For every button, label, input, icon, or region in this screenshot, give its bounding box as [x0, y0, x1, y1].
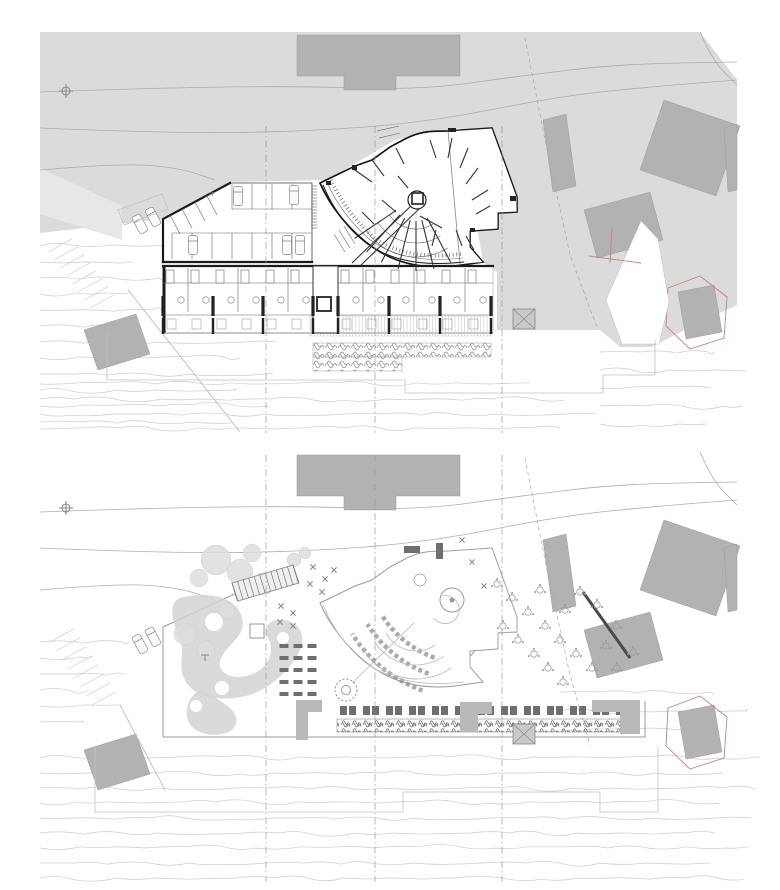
picnic-table [280, 692, 289, 696]
contour-line [40, 861, 711, 866]
bed [241, 270, 249, 283]
picnic-table [294, 644, 303, 648]
bed [442, 270, 450, 283]
plant-mark-icon [331, 567, 336, 572]
picnic-table [308, 668, 317, 672]
sun-lounger-deck [296, 700, 640, 740]
bed [417, 270, 425, 283]
picnic-table [308, 656, 317, 660]
terrace-step-line [80, 674, 104, 687]
contour-line [600, 351, 714, 354]
round-table [577, 589, 583, 595]
room-divider-wall [161, 296, 164, 316]
sun-lounger [524, 706, 531, 715]
contour-line [40, 403, 269, 408]
architectural-site-plan-sheet [0, 0, 780, 890]
round-table [515, 637, 521, 643]
sun-lounger [363, 706, 370, 715]
bed [468, 270, 476, 283]
sun-lounger [547, 706, 554, 715]
tree-canopy [174, 623, 196, 645]
sun-lounger [441, 706, 448, 715]
round-table [545, 665, 551, 671]
sun-lounger [432, 706, 439, 715]
picnic-table [294, 680, 303, 684]
contour-line [560, 691, 714, 694]
contour-line [560, 709, 747, 714]
terrace-step-line [48, 239, 72, 252]
contour-line [40, 243, 170, 246]
car-icon [296, 236, 305, 255]
contour-line [40, 845, 748, 850]
picnic-table [280, 644, 289, 648]
contour-line [40, 800, 719, 805]
terrace-step-line [66, 263, 90, 276]
sun-lounger [386, 706, 393, 715]
car-icon [234, 187, 243, 206]
sun-lounger [418, 706, 425, 715]
room-divider-wall [261, 296, 264, 316]
tree-canopy [287, 553, 301, 567]
terrace-step-line [60, 255, 84, 268]
plant-mark-icon [459, 537, 464, 542]
road-line [700, 452, 737, 505]
tree-canopy [299, 547, 311, 559]
picnic-table [308, 644, 317, 648]
context-building [297, 455, 460, 510]
round-table [573, 651, 579, 657]
sun-lounger [510, 706, 517, 715]
contour-line [600, 404, 743, 409]
sun-lounger [340, 706, 347, 715]
contour-line [40, 705, 121, 707]
tree-canopy [201, 545, 231, 575]
contour-line [40, 277, 166, 280]
contour-line [40, 426, 560, 431]
picnic-table [280, 656, 289, 660]
site-roof-plan [40, 452, 760, 882]
contour-line [40, 786, 756, 791]
sun-lounger [570, 706, 577, 715]
terrace-step-line [90, 295, 114, 308]
car-icon [283, 236, 292, 255]
bed [366, 270, 374, 283]
room-divider-wall [438, 296, 441, 316]
car-icon [132, 633, 149, 654]
sun-lounger [409, 706, 416, 715]
picnic-table [294, 656, 303, 660]
car-icon [189, 236, 198, 255]
room-divider-wall [387, 296, 390, 316]
contour-line [40, 721, 84, 723]
contour-line [40, 688, 88, 693]
planting-bed [313, 357, 402, 371]
bed [291, 270, 299, 283]
contour-line [40, 262, 133, 263]
picnic-table [308, 680, 317, 684]
picnic-table [294, 668, 303, 672]
plant-mark-icon [290, 610, 295, 615]
car-icon [290, 186, 299, 205]
bed [191, 270, 199, 283]
context-building [724, 544, 737, 612]
round-table [594, 602, 600, 608]
sun-lounger [579, 706, 586, 715]
plant-mark-icon [322, 576, 327, 581]
terrace-step-line [68, 656, 92, 669]
room-divider-wall [489, 296, 492, 316]
contour-line [40, 876, 744, 881]
sun-lounger [556, 706, 563, 715]
contour-line [40, 373, 273, 376]
terrace-step-line [92, 692, 116, 705]
terrace-step-line [54, 247, 78, 260]
terrace-step-line [74, 665, 98, 678]
sun-lounger [533, 706, 540, 715]
planting-bed [313, 343, 491, 357]
plant-mark-icon [278, 603, 283, 608]
context-building [584, 612, 663, 678]
plant-mark-icon [310, 564, 315, 569]
bed [341, 270, 349, 283]
bed [391, 270, 399, 283]
contour-line [600, 424, 706, 427]
cable-car-marker-icon [513, 309, 535, 329]
survey-marker-icon [59, 501, 73, 515]
picnic-table [280, 668, 289, 672]
picnic-table [308, 692, 317, 696]
room-divider-wall [311, 296, 314, 316]
context-building [543, 534, 576, 612]
room-divider-wall [211, 296, 214, 316]
cable-car-marker-icon [513, 724, 535, 744]
spiral-stair [335, 679, 357, 701]
planting-strip [337, 719, 638, 732]
contour-line [40, 293, 129, 296]
car-icon [145, 626, 162, 647]
round-table [531, 651, 537, 657]
picnic-table [294, 692, 303, 696]
context-building [84, 314, 150, 370]
bed [266, 270, 274, 283]
round-table [537, 587, 543, 593]
round-table [525, 609, 531, 615]
tree-canopy [197, 641, 215, 659]
sun-lounger [349, 706, 356, 715]
terrace-step-line [86, 683, 110, 696]
contour-line [40, 831, 715, 836]
tree-canopy [219, 603, 235, 619]
round-table [542, 623, 548, 629]
terrace-step-line [84, 287, 108, 300]
contour-line [40, 413, 597, 417]
round-table [560, 679, 566, 685]
contour-line [40, 421, 232, 424]
contour-line [600, 368, 747, 373]
context-building [678, 705, 722, 759]
contour-line [40, 341, 277, 344]
upper-floor-plan [40, 32, 747, 433]
terrace-step-line [50, 629, 74, 642]
terrace-step-line [78, 279, 102, 292]
plant-mark-icon [307, 581, 312, 586]
plant-mark-icon [319, 589, 324, 594]
planter-box [250, 624, 264, 638]
bed [166, 270, 174, 283]
contour-line [40, 816, 752, 821]
contour-line [40, 641, 129, 644]
fan-wing-roof [320, 548, 517, 687]
room-divider-wall [336, 296, 339, 316]
contour-line [40, 381, 531, 386]
terrace-step-line [56, 638, 80, 651]
sun-lounger [395, 706, 402, 715]
contour-line [40, 397, 564, 402]
contour-line [600, 386, 710, 389]
tree-canopy [243, 544, 261, 562]
tree-canopy [190, 569, 208, 587]
paved-path [296, 700, 322, 740]
context-building [678, 285, 722, 339]
bed [216, 270, 224, 283]
sun-lounger [372, 706, 379, 715]
picnic-table [280, 680, 289, 684]
